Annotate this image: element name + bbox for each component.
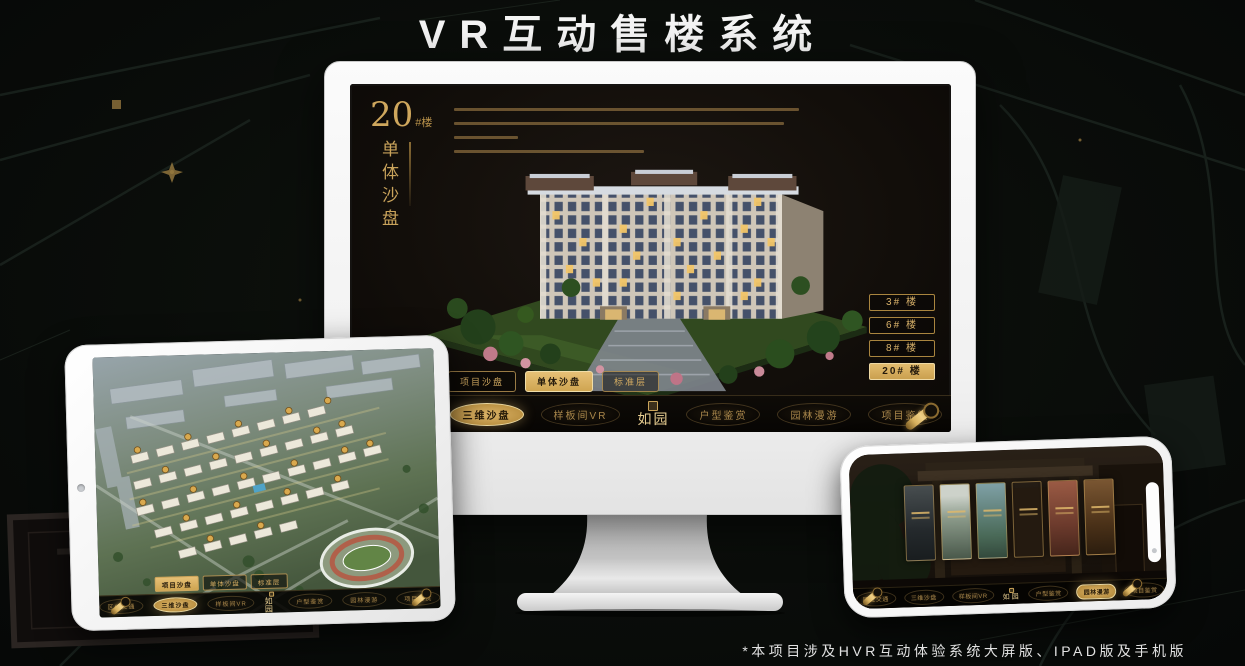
brand-seal-icon <box>269 591 274 596</box>
brand-logo-text: 如园 <box>637 413 669 427</box>
description-line <box>454 108 799 111</box>
phone-camera-icon <box>1152 548 1157 553</box>
floor-button-8[interactable]: 8# 楼 <box>869 340 935 357</box>
brand-seal-icon <box>1009 587 1014 592</box>
brand-logo-text: 如园 <box>1003 593 1021 601</box>
tablet-device: 项目沙盘 单体沙盘 标准层 区位交通 三维沙盘 样板间VR 如园 户型鉴赏 园林… <box>64 335 456 632</box>
tab-single-sandbox[interactable]: 单体沙盘 <box>203 574 247 590</box>
description-text-lines <box>454 108 804 164</box>
floor-button-20[interactable]: 20# 楼 <box>869 363 935 380</box>
nav-item-3d-sandbox[interactable]: 三维沙盘 <box>904 589 944 605</box>
phone-device: 区位交通 三维沙盘 样板间VR 如园 户型鉴赏 园林漫游 项目鉴赏 <box>839 436 1177 619</box>
phone-notch <box>1146 482 1162 562</box>
stage: VR互动售楼系统 20#楼 单体沙盘 <box>0 0 1245 666</box>
gallery-panel-study[interactable] <box>1083 478 1116 555</box>
floor-button-6[interactable]: 6# 楼 <box>869 317 935 334</box>
building-number-suffix: #楼 <box>415 117 432 129</box>
monitor-stand <box>505 513 795 617</box>
nav-item-garden-tour[interactable]: 园林漫游 <box>342 592 386 608</box>
tab-standard-floor[interactable]: 标准层 <box>602 371 659 392</box>
monitor-tabs: 项目沙盘 单体沙盘 标准层 <box>448 371 659 392</box>
tab-project-sandbox[interactable]: 项目沙盘 <box>155 576 199 592</box>
tablet-screen: 项目沙盘 单体沙盘 标准层 区位交通 三维沙盘 样板间VR 如园 户型鉴赏 园林… <box>92 348 440 617</box>
nav-item-3d-sandbox[interactable]: 三维沙盘 <box>153 597 197 613</box>
brand-seal-icon <box>648 401 658 411</box>
building-title: 20#楼 单体沙盘 <box>370 98 432 237</box>
tab-standard-floor[interactable]: 标准层 <box>251 573 288 589</box>
floor-button-3[interactable]: 3# 楼 <box>869 294 935 311</box>
tab-single-sandbox[interactable]: 单体沙盘 <box>525 371 593 392</box>
brand-logo[interactable]: 如园 <box>637 401 669 427</box>
building-render <box>418 132 873 402</box>
building-number: 20 <box>370 98 413 132</box>
gallery-panels <box>904 478 1116 561</box>
phone-screen: 区位交通 三维沙盘 样板间VR 如园 户型鉴赏 园林漫游 项目鉴赏 <box>849 445 1168 609</box>
building-subtitle-vertical: 单体沙盘 <box>376 140 401 232</box>
nav-item-unit-plans[interactable]: 户型鉴赏 <box>288 593 332 609</box>
description-line <box>454 150 644 153</box>
description-line <box>454 122 784 125</box>
brand-logo[interactable]: 如园 <box>1002 587 1020 601</box>
description-line <box>454 136 518 139</box>
brand-logo-text: 如园 <box>265 597 279 613</box>
nav-item-showroom-vr[interactable]: 样板间VR <box>541 403 621 426</box>
nav-item-3d-sandbox[interactable]: 三维沙盘 <box>450 403 524 426</box>
gallery-panel-landscape[interactable] <box>976 482 1009 559</box>
nav-item-unit-plans[interactable]: 户型鉴赏 <box>686 403 760 426</box>
brand-logo[interactable]: 如园 <box>264 591 278 613</box>
tablet-camera-icon <box>77 484 85 492</box>
footnote-text: *本项目涉及HVR互动体验系统大屏版、IPAD版及手机版 <box>742 641 1187 661</box>
tab-project-sandbox[interactable]: 项目沙盘 <box>448 371 516 392</box>
gallery-panel-autumn[interactable] <box>1047 480 1080 557</box>
gallery-panel-interior[interactable] <box>940 483 973 560</box>
nav-item-garden-tour[interactable]: 园林漫游 <box>777 403 851 426</box>
floor-selector: 3# 楼 6# 楼 8# 楼 20# 楼 <box>869 294 935 380</box>
subtitle-caption-line <box>409 142 411 206</box>
page-title: VR互动售楼系统 <box>0 2 1245 60</box>
gallery-panel-courtyard[interactable] <box>904 484 937 561</box>
nav-item-unit-plans[interactable]: 户型鉴赏 <box>1028 585 1068 601</box>
nav-item-showroom-vr[interactable]: 样板间VR <box>207 595 255 611</box>
nav-item-garden-tour[interactable]: 园林漫游 <box>1076 583 1116 599</box>
nav-item-showroom-vr[interactable]: 样板间VR <box>952 587 995 603</box>
gallery-panel-building[interactable] <box>1012 481 1045 558</box>
